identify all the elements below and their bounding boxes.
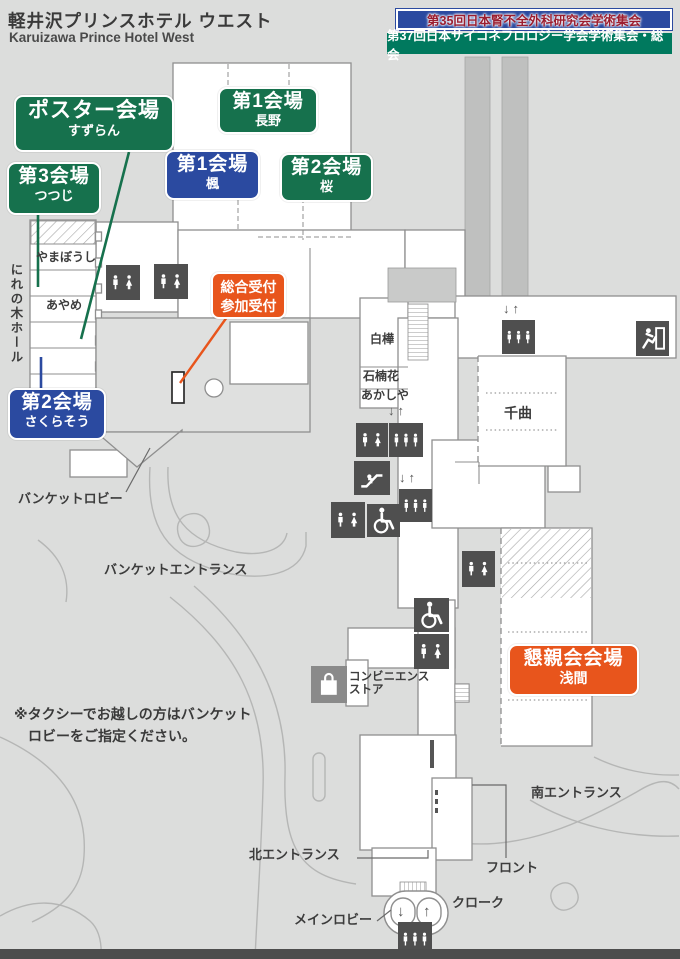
- room-label-chikuma: 千曲: [504, 405, 532, 421]
- corridor-strips: [465, 57, 528, 299]
- restroom-icon: [462, 551, 495, 587]
- elevator-icon: [389, 423, 423, 457]
- floor-map-page: ↓↑ ↓↑ ↓↑ ↓ ↑ にれの木ホール やまぼうし あやめ 白樺 石楠花 あか…: [0, 0, 680, 959]
- venue-badge-party: 懇親会会場 浅間: [508, 644, 639, 696]
- elevator-icon: [502, 320, 535, 354]
- venue-badge-hall2-sakurasou: 第2会場 さくらそう: [8, 388, 106, 440]
- place-label-north-entrance: 北エントランス: [249, 848, 340, 863]
- place-label-banquet-lobby: バンケットロビー: [18, 492, 123, 507]
- restroom-icon: [154, 264, 188, 299]
- shopping-bag-icon: [311, 666, 347, 703]
- emergency-exit-icon: [636, 321, 669, 356]
- conference-banner-2: 第37回日本サイコネフロロジー学会学術集会・総会: [387, 33, 672, 54]
- place-label-banquet-entrance: バンケットエントランス: [104, 563, 247, 578]
- room-label-shakunage: 石楠花: [363, 370, 399, 384]
- footer-bar: [0, 949, 680, 959]
- restroom-icon: [356, 423, 388, 457]
- place-label-front-desk: フロント: [486, 861, 538, 876]
- room-label-akashiya: あかしや: [361, 389, 409, 403]
- venue-badge-reception: 総合受付 参加受付: [211, 272, 286, 319]
- venue-badge-hall1-nagano: 第1会場 長野: [218, 87, 318, 134]
- restroom-icon: [331, 502, 365, 538]
- venue-badge-poster: ポスター会場 すずらん: [14, 95, 174, 152]
- venue-badge-hall1-kaede: 第1会場 楓: [165, 150, 260, 200]
- room-label-yamaboushi: やまぼうし: [36, 251, 96, 265]
- updown-arrows: ↓↑: [399, 470, 418, 485]
- venue-badge-hall2-sakura: 第2会場 桜: [280, 153, 373, 202]
- taxi-note: ※タクシーでお越しの方はバンケット ロビーをご指定ください。: [14, 703, 251, 747]
- venue-badge-hall3-tsutsuji: 第3会場 つつじ: [7, 162, 101, 215]
- escalator-icon: [354, 461, 390, 495]
- wheelchair-icon: [414, 598, 449, 632]
- restroom-icon: [414, 634, 449, 669]
- wheelchair-icon: [367, 504, 400, 537]
- page-subtitle: Karuizawa Prince Hotel West: [9, 30, 194, 45]
- restroom-icon: [106, 265, 140, 300]
- elevator-icon: [399, 489, 432, 522]
- room-label-ayame: あやめ: [46, 299, 82, 313]
- down-arrow: ↓: [397, 903, 408, 920]
- place-label-south-entrance: 南エントランス: [531, 786, 622, 801]
- up-arrow: ↑: [423, 903, 434, 920]
- room-asama-shape: [501, 528, 592, 746]
- place-label-cloak: クローク: [452, 896, 504, 911]
- place-label-convenience-store: コンビニエンス ストア: [349, 671, 429, 697]
- updown-arrows: ↓↑: [388, 403, 407, 418]
- room-label-nirenoki-hall: にれの木ホール: [8, 263, 22, 363]
- place-label-main-lobby: メインロビー: [294, 913, 372, 928]
- updown-arrows: ↓↑: [503, 301, 522, 316]
- room-label-shirakaba: 白樺: [370, 333, 394, 347]
